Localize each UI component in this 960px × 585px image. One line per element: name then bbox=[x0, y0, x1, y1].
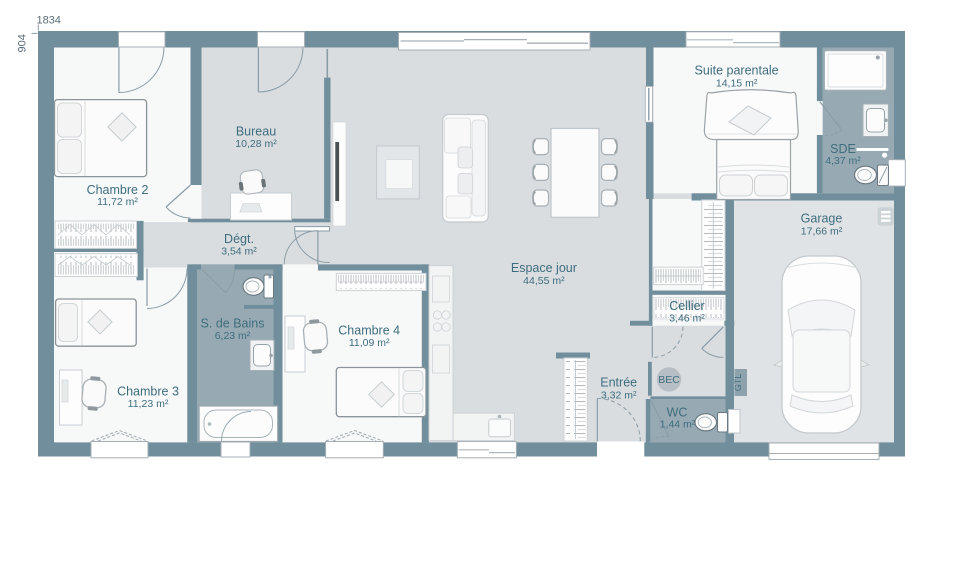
svg-text:Entrée: Entrée bbox=[600, 376, 637, 390]
svg-text:Chambre 3: Chambre 3 bbox=[117, 385, 179, 399]
svg-text:1834: 1834 bbox=[36, 15, 60, 27]
svg-text:S. de Bains: S. de Bains bbox=[201, 317, 265, 331]
svg-text:3,32 m²: 3,32 m² bbox=[601, 390, 637, 402]
svg-text:SDE: SDE bbox=[830, 142, 856, 156]
svg-text:14,15 m²: 14,15 m² bbox=[716, 78, 758, 90]
svg-text:6,23 m²: 6,23 m² bbox=[215, 330, 251, 342]
svg-text:Espace jour: Espace jour bbox=[511, 261, 577, 275]
svg-text:44,55 m²: 44,55 m² bbox=[523, 275, 565, 287]
svg-text:GTL: GTL bbox=[733, 374, 743, 392]
svg-text:Suite parentale: Suite parentale bbox=[695, 64, 779, 78]
svg-text:WC: WC bbox=[667, 406, 688, 420]
svg-text:11,23 m²: 11,23 m² bbox=[128, 398, 169, 410]
svg-text:3,54 m²: 3,54 m² bbox=[221, 246, 257, 258]
svg-text:Chambre 2: Chambre 2 bbox=[87, 183, 149, 197]
svg-text:Cellier: Cellier bbox=[669, 299, 704, 313]
svg-text:BEC: BEC bbox=[658, 374, 680, 386]
svg-text:904: 904 bbox=[17, 34, 29, 52]
svg-text:Dégt.: Dégt. bbox=[224, 232, 254, 246]
svg-text:Garage: Garage bbox=[801, 212, 843, 226]
svg-text:3,46 m²: 3,46 m² bbox=[669, 313, 705, 325]
svg-text:10,28 m²: 10,28 m² bbox=[235, 138, 277, 150]
svg-text:17,66 m²: 17,66 m² bbox=[801, 226, 843, 238]
svg-text:4,37 m²: 4,37 m² bbox=[825, 155, 861, 167]
svg-text:Bureau: Bureau bbox=[236, 125, 276, 139]
svg-text:1,44 m²: 1,44 m² bbox=[660, 419, 696, 431]
svg-text:11,72 m²: 11,72 m² bbox=[97, 196, 138, 208]
svg-text:Chambre 4: Chambre 4 bbox=[338, 324, 400, 338]
svg-text:11,09 m²: 11,09 m² bbox=[349, 337, 390, 349]
